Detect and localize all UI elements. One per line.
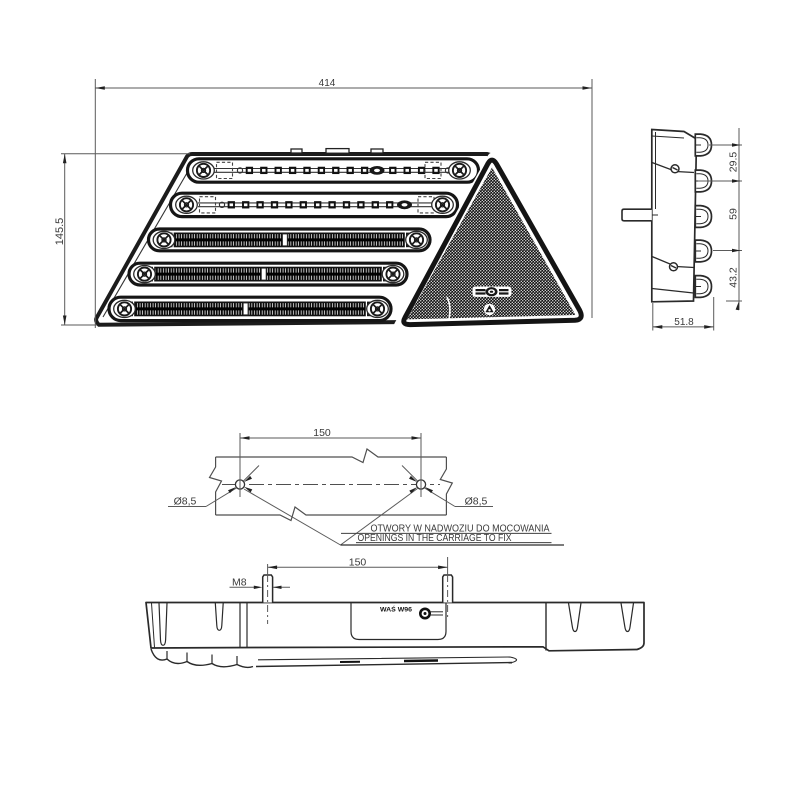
svg-text:145.5: 145.5 [54,218,66,246]
svg-text:Ø8,5: Ø8,5 [174,496,197,508]
svg-text:M8: M8 [232,577,247,589]
svg-text:59: 59 [727,208,739,220]
svg-text:Ø8,5: Ø8,5 [465,496,488,508]
svg-text:150: 150 [349,557,367,569]
svg-text:29.5: 29.5 [727,152,739,173]
svg-text:150: 150 [313,427,331,439]
svg-text:51.8: 51.8 [674,317,694,328]
svg-text:43.2: 43.2 [727,267,739,288]
svg-text:WAŚ W96: WAŚ W96 [380,605,412,614]
svg-text:414: 414 [319,78,336,89]
